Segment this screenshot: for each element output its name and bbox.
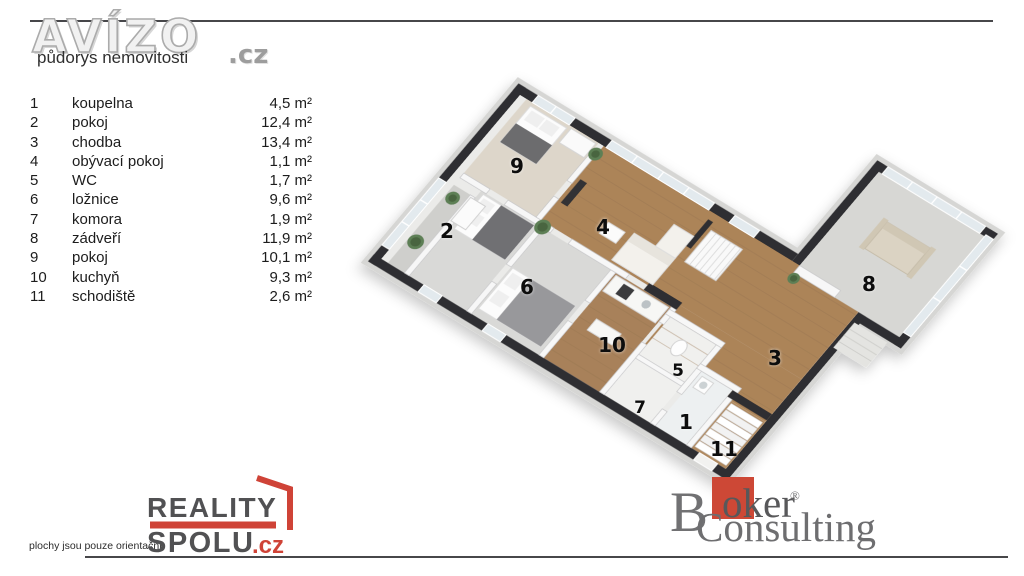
room-number-label: 4 (596, 215, 610, 239)
room-number-label: 2 (440, 219, 454, 243)
reality-spolu-logo-line1: REALITY (147, 492, 277, 524)
room-number-label: 9 (510, 154, 524, 178)
registered-trademark-icon: ® (790, 488, 800, 504)
room-number-label: 6 (520, 275, 534, 299)
building (361, 0, 1006, 512)
room-number-label: 11 (710, 437, 738, 461)
disclaimer-text: plochy jsou pouze orientační (29, 540, 162, 552)
room-number-label: 5 (672, 361, 684, 381)
broker-consulting-logo: B oker ® Consulting (660, 470, 920, 560)
footer-rule (85, 556, 1008, 558)
room-number-label: 1 (679, 410, 693, 434)
room-number-label: 7 (634, 398, 646, 418)
room-number-label: 8 (862, 272, 876, 296)
broker-logo-part2: Consulting (696, 507, 876, 548)
room-number-label: 3 (768, 346, 782, 370)
room-number-label: 10 (598, 333, 626, 357)
